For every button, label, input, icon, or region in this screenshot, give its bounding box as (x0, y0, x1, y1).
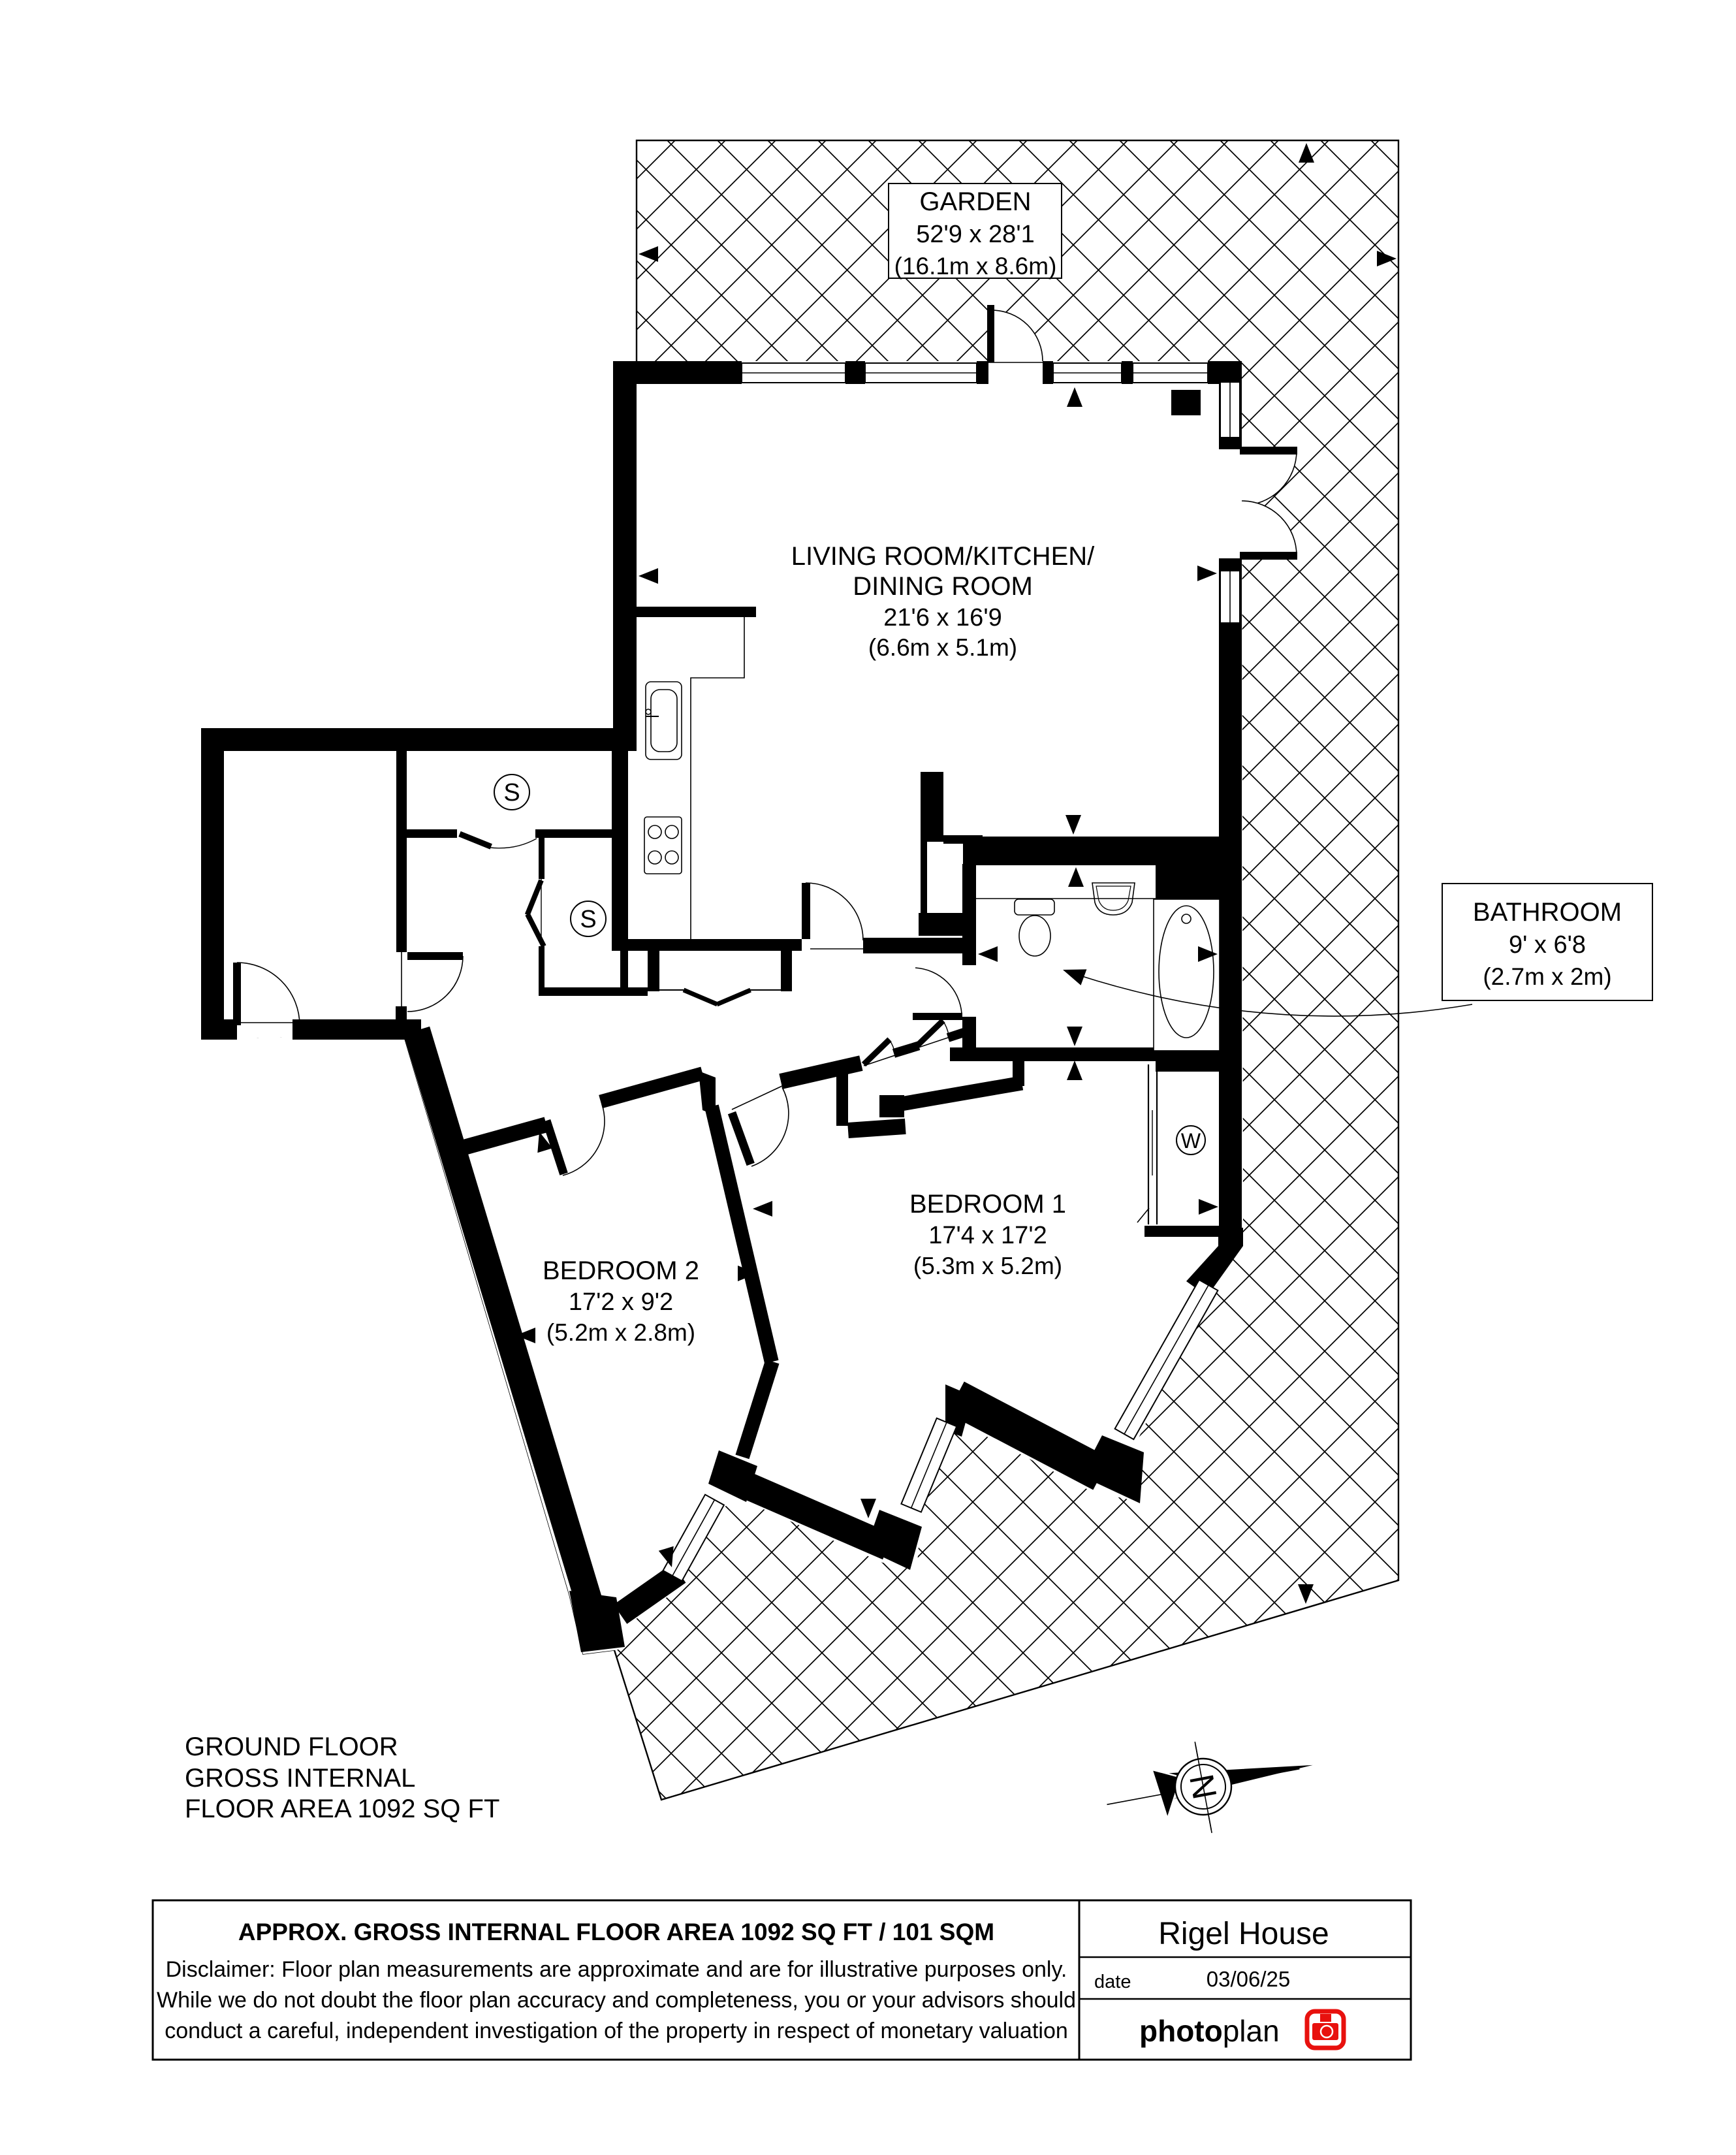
svg-text:While we do not doubt the floo: While we do not doubt the floor plan acc… (157, 1988, 1076, 2013)
svg-text:LIVING ROOM/KITCHEN/: LIVING ROOM/KITCHEN/ (791, 542, 1095, 571)
svg-text:photoplan: photoplan (1139, 2014, 1280, 2048)
svg-text:52'9 x 28'1: 52'9 x 28'1 (916, 221, 1034, 248)
svg-text:BEDROOM 2: BEDROOM 2 (543, 1256, 699, 1285)
svg-text:9' x 6'8: 9' x 6'8 (1509, 931, 1586, 959)
svg-text:FLOOR AREA 1092 SQ FT: FLOOR AREA 1092 SQ FT (185, 1795, 499, 1823)
svg-text:S: S (580, 906, 596, 933)
svg-text:Rigel House: Rigel House (1158, 1917, 1329, 1951)
svg-text:17'2 x 9'2: 17'2 x 9'2 (569, 1288, 673, 1316)
svg-text:W: W (1181, 1129, 1201, 1153)
svg-text:DINING ROOM: DINING ROOM (853, 572, 1033, 601)
svg-text:(2.7m x 2m): (2.7m x 2m) (1483, 963, 1611, 990)
svg-text:(5.3m x 5.2m): (5.3m x 5.2m) (913, 1253, 1062, 1279)
svg-text:BATHROOM: BATHROOM (1473, 898, 1622, 927)
svg-text:(16.1m x 8.6m): (16.1m x 8.6m) (894, 253, 1057, 279)
svg-text:BEDROOM 1: BEDROOM 1 (909, 1190, 1066, 1219)
svg-text:APPROX. GROSS INTERNAL FLOOR A: APPROX. GROSS INTERNAL FLOOR AREA 1092 S… (238, 1919, 994, 1945)
svg-text:date: date (1094, 1971, 1131, 1992)
svg-text:GROUND FLOOR: GROUND FLOOR (185, 1732, 398, 1761)
svg-text:03/06/25: 03/06/25 (1207, 1967, 1290, 1991)
svg-text:conduct a careful, independent: conduct a careful, independent investiga… (165, 2019, 1068, 2043)
svg-text:(5.2m x 2.8m): (5.2m x 2.8m) (546, 1319, 695, 1346)
svg-text:(6.6m x 5.1m): (6.6m x 5.1m) (868, 634, 1017, 661)
svg-text:21'6 x 16'9: 21'6 x 16'9 (883, 604, 1002, 631)
svg-text:Disclaimer: Floor plan measure: Disclaimer: Floor plan measurements are … (166, 1957, 1067, 1982)
svg-text:GROSS INTERNAL: GROSS INTERNAL (185, 1764, 415, 1793)
svg-text:S: S (503, 779, 520, 806)
svg-text:GARDEN: GARDEN (919, 187, 1031, 216)
svg-text:17'4 x 17'2: 17'4 x 17'2 (928, 1222, 1047, 1249)
